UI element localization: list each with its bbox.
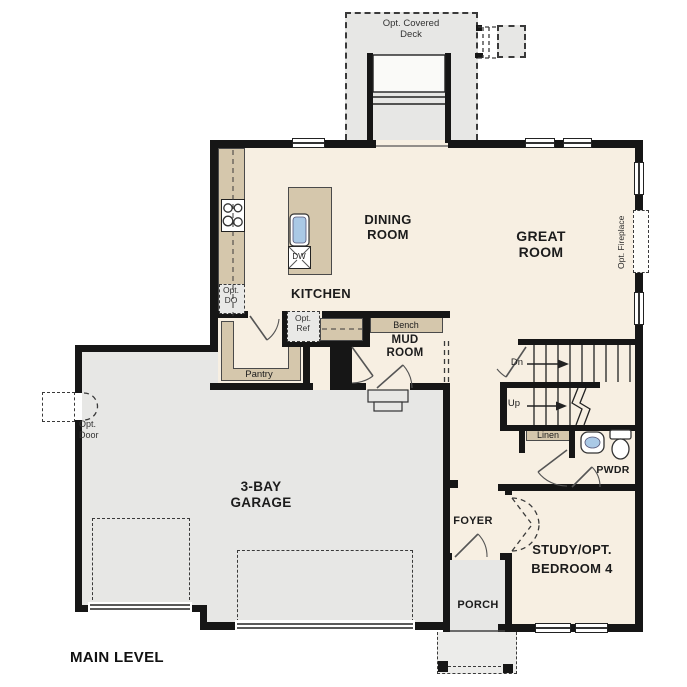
wall-garage-top: [75, 345, 218, 352]
dining-room-label: DININGROOM: [364, 213, 411, 243]
pantry-label: Pantry: [245, 370, 272, 381]
wall-hall-stub: [443, 480, 458, 488]
porch-label: PORCH: [457, 599, 498, 612]
mud-room-label: MUDROOM: [387, 334, 424, 360]
study-label: STUDY/OPT.BEDROOM 4: [531, 541, 612, 579]
porch-floor: [450, 560, 505, 632]
wall-garage-left-upper: [75, 345, 82, 393]
mud-east-cased-opening: [443, 340, 450, 383]
study-window-1: [535, 623, 571, 633]
stair-down-label: Dn: [511, 358, 523, 369]
wall-kitchen-left: [210, 140, 218, 352]
stair-up-label: Up: [508, 399, 520, 410]
opt-door-label: Opt.Door: [79, 419, 99, 441]
wall-mud-north: [322, 311, 450, 318]
stoop-post-left: [438, 661, 448, 672]
porch-stoop-inner-line: [443, 666, 511, 669]
wall-stair-left: [500, 382, 507, 431]
wall-pwdr-left: [569, 425, 575, 458]
wall-mud-west-upper: [363, 318, 370, 347]
wall-garage-bottom: [200, 622, 450, 630]
great-room-label: GREATROOM: [516, 228, 565, 260]
pantry-door-opening: [248, 311, 282, 318]
kitchen-window: [292, 138, 325, 148]
deck-label: Opt. CoveredDeck: [383, 19, 440, 41]
garage-bay-clearance-left: [92, 518, 190, 605]
deck-tick-1: [476, 25, 482, 31]
linen-label: Linen: [537, 430, 559, 440]
garage-bay-clearance-main: [237, 550, 413, 622]
opt-double-oven-label: Opt.DO: [223, 286, 239, 306]
opt-door-outline: [42, 392, 75, 422]
greatroom-window-2: [563, 138, 592, 148]
wall-garage-left-lower: [75, 420, 82, 612]
greatroom-window-1: [525, 138, 555, 148]
kitchen-label: KITCHEN: [291, 287, 351, 302]
greatroom-window-right-2: [634, 292, 644, 325]
greatroom-window-right-1: [634, 162, 644, 195]
front-door-opening: [452, 553, 500, 560]
garage-label: 3-BAYGARAGE: [230, 479, 291, 510]
opt-fireplace-outline: [633, 210, 649, 273]
mud-garage-door-opening: [366, 383, 410, 390]
wall-garage-bottom-left: [75, 605, 207, 612]
deck-stair-landing-outline: [497, 25, 526, 58]
floor-plan: Opt. CoveredDeck DININGROOM GREATROOM KI…: [0, 0, 687, 687]
wall-mud-west-chunk: [330, 347, 352, 390]
wall-pantry-south: [210, 383, 313, 390]
main-floor: [218, 148, 635, 311]
wall-stair-top: [518, 339, 643, 345]
cooktop: [221, 199, 245, 232]
deck-tick-2: [475, 53, 483, 58]
wall-linen-left: [519, 425, 525, 453]
dishwasher-label: DW: [292, 252, 305, 261]
plan-title: MAIN LEVEL: [70, 649, 164, 666]
pantry-floor: [233, 321, 289, 369]
powder-label: PWDR: [596, 464, 629, 476]
bench-label: Bench: [393, 320, 419, 330]
wall-hall-study: [498, 484, 643, 491]
wall-stair-mid: [500, 382, 600, 388]
garage-floor-step: [207, 352, 218, 622]
wall-study-left-lower: [505, 553, 512, 632]
stoop-post-right: [503, 664, 513, 673]
wall-garage-right: [443, 390, 450, 632]
foyer-label: FOYER: [453, 515, 492, 528]
opt-fireplace-label: Opt. Fireplace: [616, 210, 626, 274]
kitchen-counter-south: [320, 318, 363, 341]
deck-slider-opening: [376, 140, 448, 148]
study-window-2: [575, 623, 608, 633]
opt-fridge-label: Opt.Ref: [295, 314, 311, 334]
